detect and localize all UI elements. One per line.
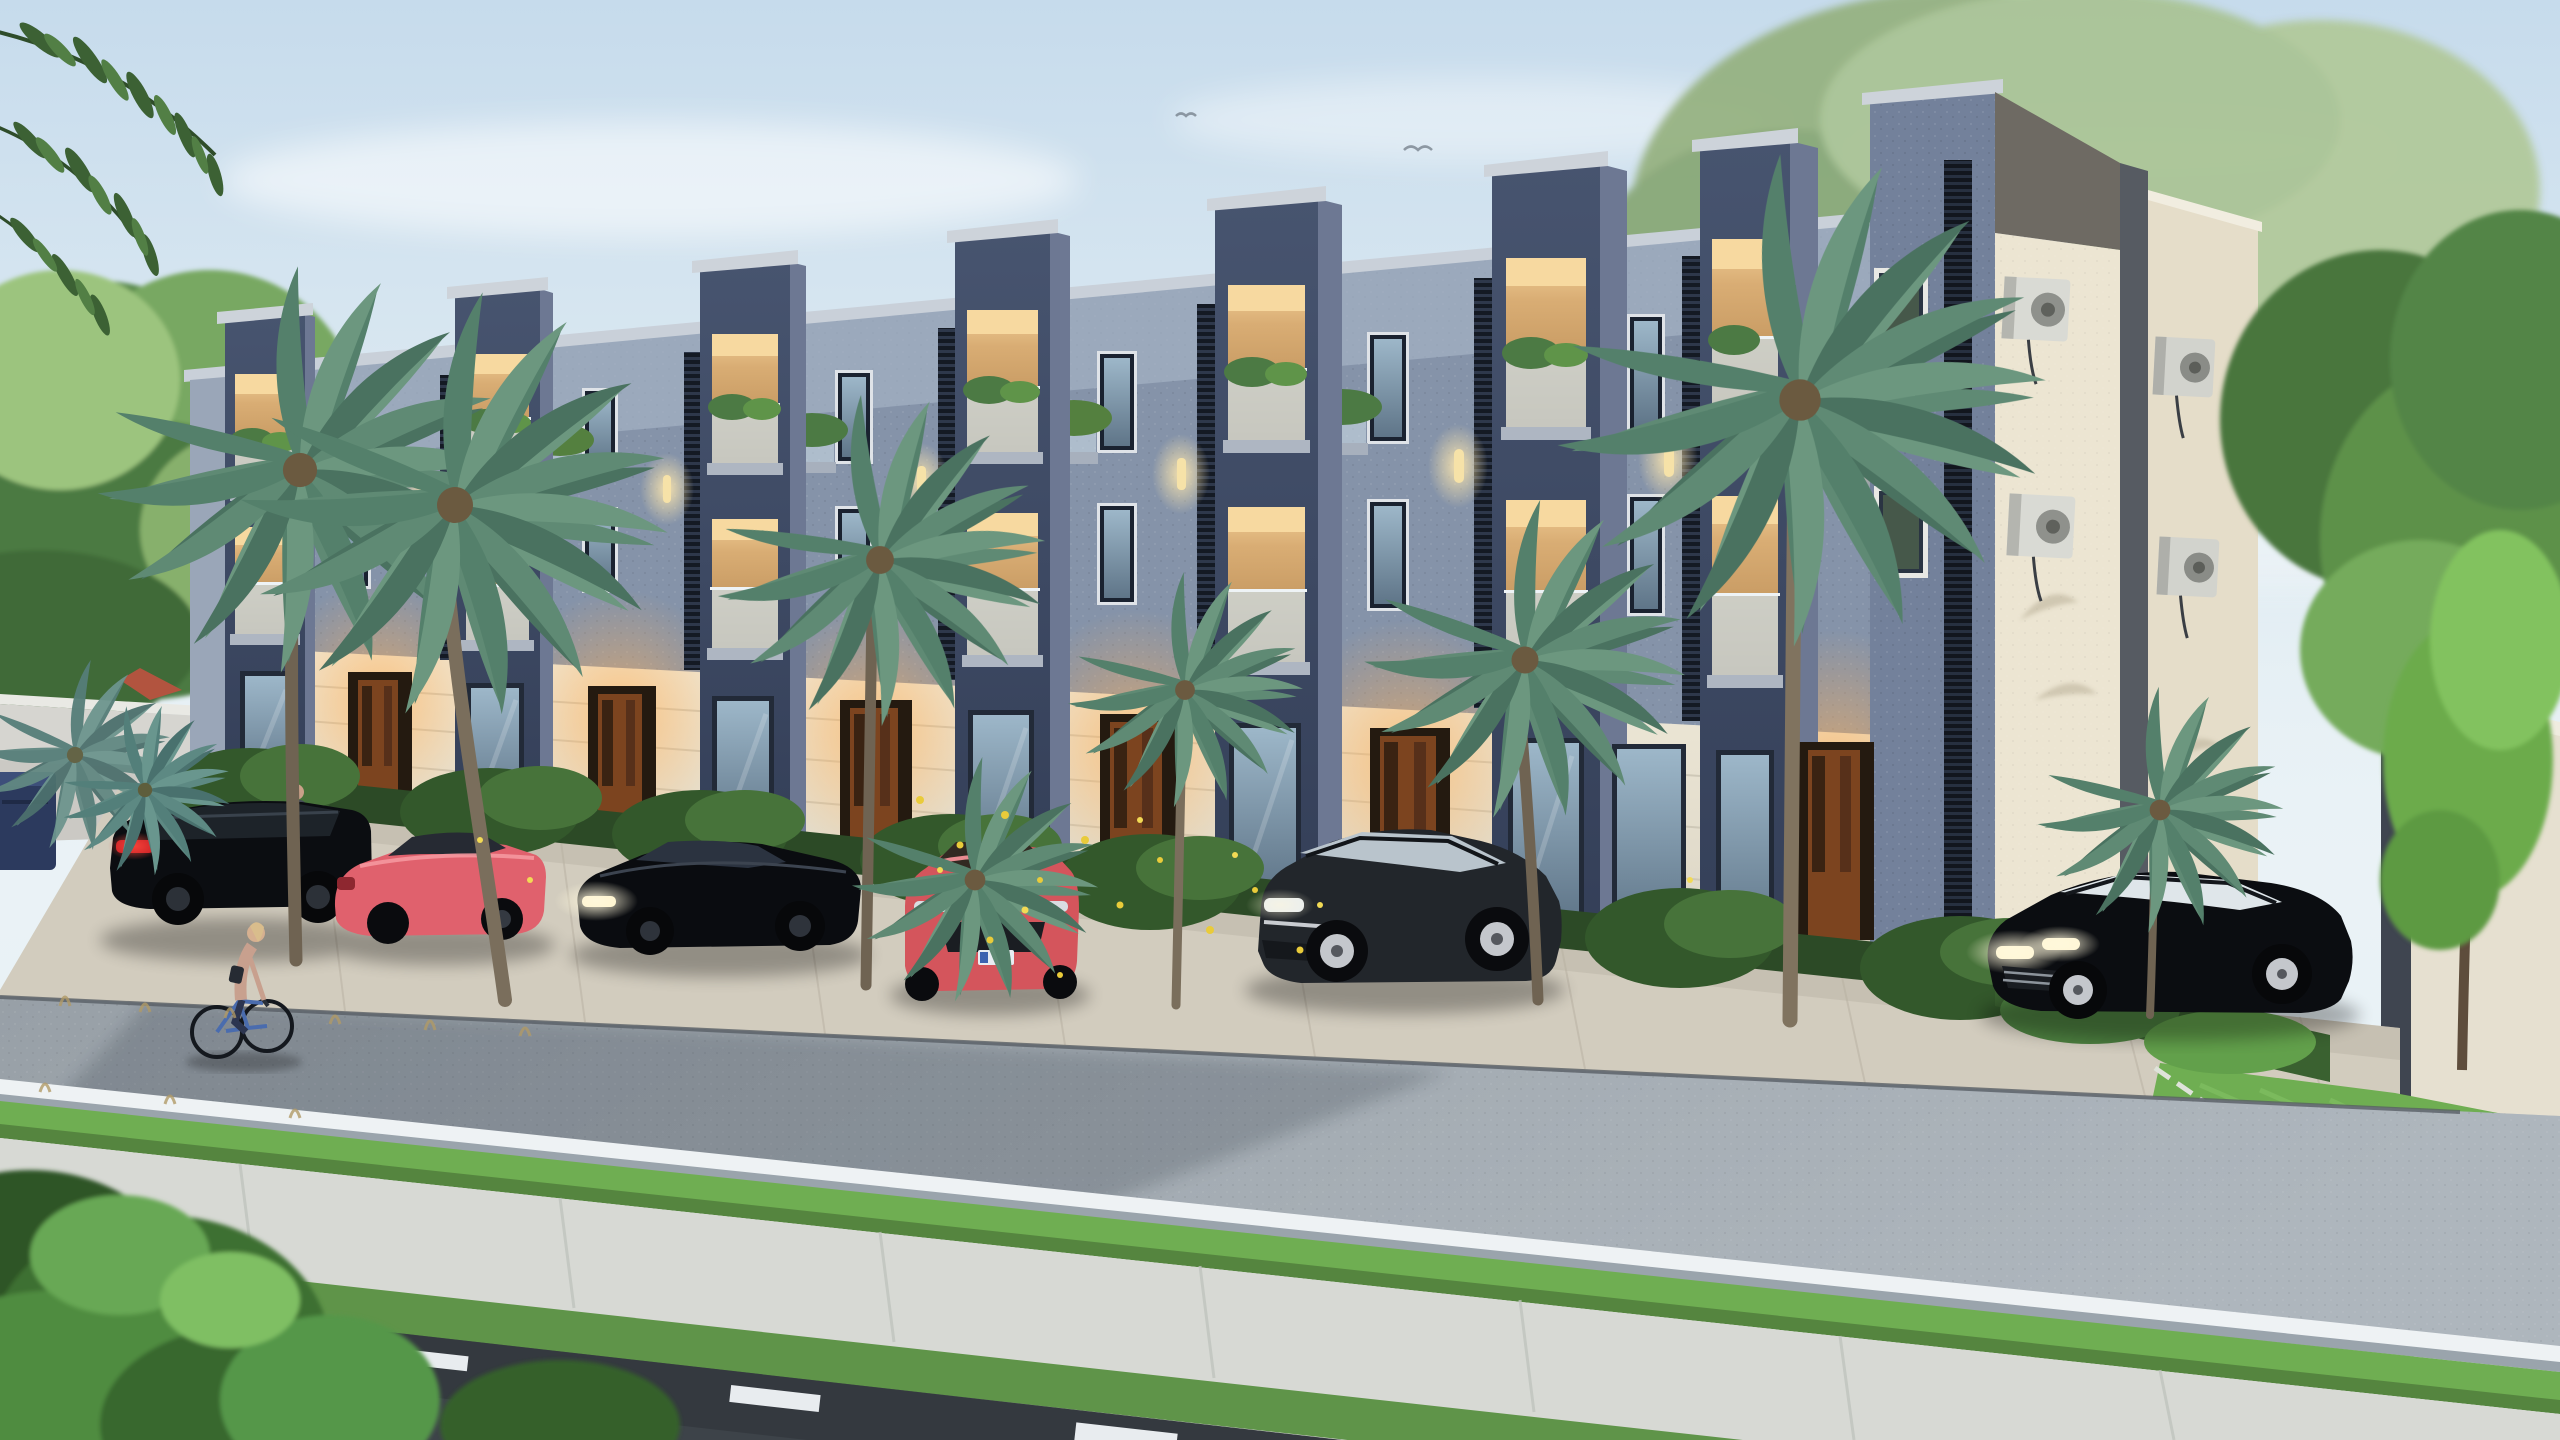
- door-6: [1798, 742, 1874, 940]
- scene-canvas: [0, 0, 2560, 1440]
- rendered-scene: [0, 0, 2560, 1440]
